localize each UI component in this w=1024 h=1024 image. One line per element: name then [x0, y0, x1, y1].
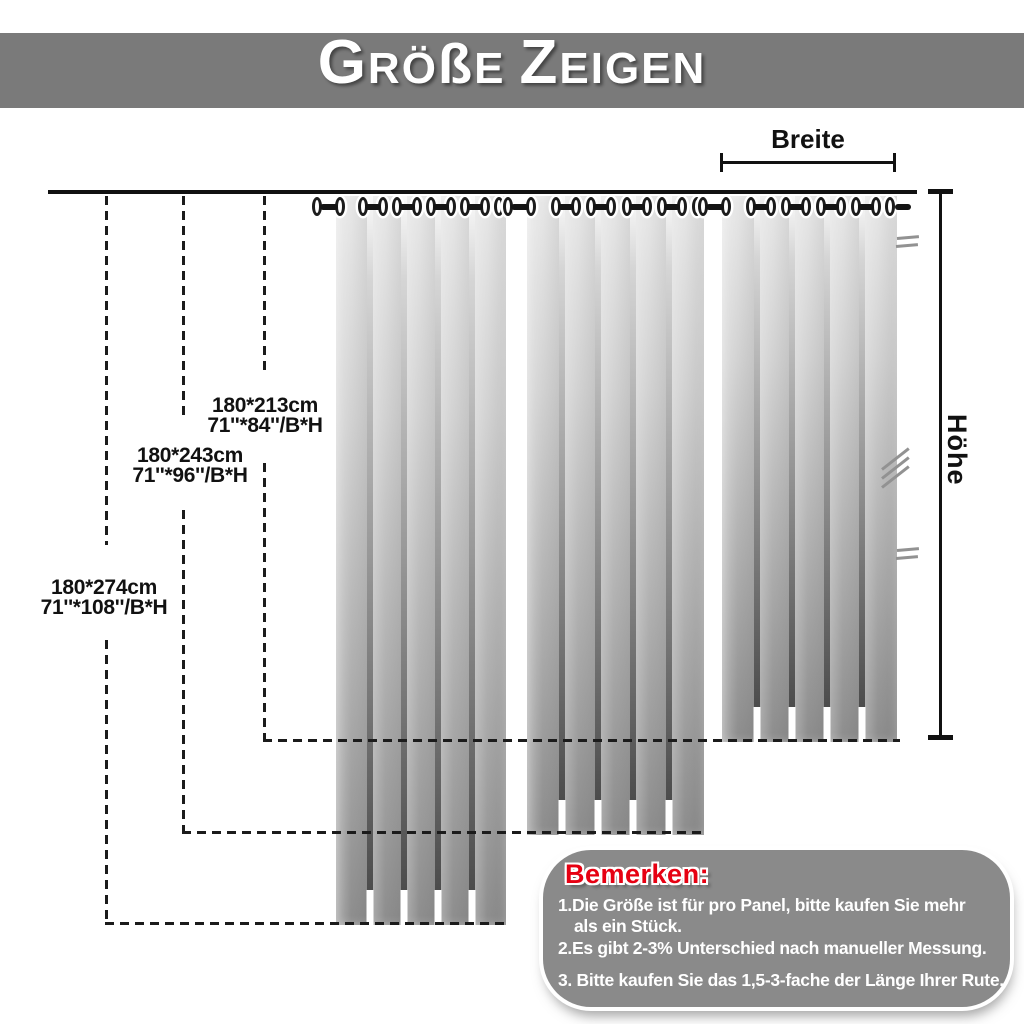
grommet-pair — [622, 197, 652, 219]
grommet-pair — [460, 197, 490, 219]
hem-slit — [789, 707, 796, 742]
size-label-213: 180*213cm 71''*84''/B*H — [196, 396, 334, 436]
grommet-pair — [426, 197, 456, 219]
hem-slit — [401, 890, 408, 925]
hem-slit — [630, 800, 637, 835]
fold-section — [827, 196, 862, 742]
guide-line-vertical-274 — [105, 196, 108, 545]
size-cm: 180*243cm — [121, 446, 259, 466]
size-label-274: 180*274cm 71''*108''/B*H — [31, 578, 177, 618]
size-inches: 71''*84''/B*H — [196, 416, 334, 436]
fold-mark — [896, 555, 918, 560]
guide-line-vertical-213 — [263, 196, 266, 372]
grommet-row — [527, 197, 704, 219]
fold-stripe — [367, 196, 373, 890]
rod-segment — [593, 204, 609, 210]
hem-slit — [859, 707, 866, 742]
rod-segment — [433, 204, 449, 210]
fold-mark — [897, 235, 919, 240]
rod-segment — [467, 204, 483, 210]
guide-line-bottom-274 — [105, 922, 505, 925]
guide-line-vertical-243 — [182, 196, 185, 420]
rod-segment — [753, 204, 769, 210]
grommet-pair — [551, 197, 581, 219]
fold-mark — [896, 243, 918, 248]
fold-stripe — [666, 196, 672, 800]
rod-segment — [664, 204, 680, 210]
guide-line-bottom-213 — [263, 739, 900, 742]
fold-section — [472, 196, 506, 925]
height-measure-cap-top — [928, 189, 953, 194]
curtain-panel-274cm — [336, 196, 506, 925]
notes-box: Bemerken: 1.Die Größe ist für pro Panel,… — [543, 850, 1010, 1007]
curtain-rod — [48, 190, 917, 194]
note-1: 1.Die Größe ist für pro Panel, bitte kau… — [558, 895, 965, 916]
hem-slit — [435, 890, 442, 925]
fold-stripe — [559, 196, 565, 800]
size-label-243: 180*243cm 71''*96''/B*H — [121, 446, 259, 486]
fold-stripe — [789, 196, 795, 707]
fold-stripe — [595, 196, 601, 800]
fold-stripe — [824, 196, 830, 707]
fold-stripe — [435, 196, 441, 890]
rod-segment — [788, 204, 804, 210]
hem-slit — [754, 707, 761, 742]
grommet-pair — [816, 197, 846, 219]
grommet-pair — [392, 197, 422, 219]
fold-stripe — [630, 196, 636, 800]
guide-line-vertical-243 — [182, 510, 185, 833]
rod-segment — [629, 204, 645, 210]
header-banner: GRÖßEZEIGEN — [0, 33, 1024, 108]
rod-segment — [895, 204, 911, 210]
fold-stripe — [754, 196, 760, 707]
size-inches: 71''*96''/B*H — [121, 466, 259, 486]
size-cm: 180*213cm — [196, 396, 334, 416]
fold-section — [792, 196, 827, 742]
width-label: Breite — [721, 124, 895, 155]
grommet-pair — [851, 197, 881, 219]
grommet-pair — [746, 197, 776, 219]
grommet-pair — [358, 197, 388, 219]
notes-title: Bemerken: — [565, 859, 709, 890]
grommet-row — [336, 197, 506, 219]
note-2: 2.Es gibt 2-3% Unterschied nach manuelle… — [558, 938, 986, 959]
fold-section — [438, 196, 472, 925]
rod-segment — [511, 204, 529, 210]
note-1-continued: als ein Stück. — [574, 916, 682, 937]
height-measure-cap-bottom — [928, 735, 953, 740]
hem-slit — [665, 800, 672, 835]
hem-slit — [594, 800, 601, 835]
guide-line-vertical-274 — [105, 640, 108, 925]
grommet-pair — [781, 197, 811, 219]
width-measure-tick-left — [720, 153, 723, 172]
rod-segment — [399, 204, 415, 210]
curtain-size-diagram: GRÖßEZEIGEN Breite Höhe 180*213cm 71''*8… — [0, 0, 1024, 1024]
guide-line-vertical-213 — [263, 463, 266, 742]
size-cm: 180*274cm — [31, 578, 177, 598]
fold-stripe — [859, 196, 865, 707]
fold-stripe — [401, 196, 407, 890]
fold-section — [722, 196, 757, 742]
hem-slit — [559, 800, 566, 835]
rod-segment — [365, 204, 381, 210]
height-label: Höhe — [941, 414, 972, 486]
fold-section — [757, 196, 792, 742]
fold-section — [336, 196, 370, 925]
page-title: GRÖßEZEIGEN — [318, 25, 707, 116]
guide-line-bottom-243 — [182, 831, 704, 834]
hem-slit — [824, 707, 831, 742]
rod-segment — [858, 204, 874, 210]
rod-segment — [706, 204, 724, 210]
curtain-panel-213cm — [722, 196, 897, 742]
grommet-ring — [885, 197, 895, 216]
fold-stripe — [469, 196, 475, 890]
rod-segment — [320, 204, 338, 210]
hem-slit — [367, 890, 374, 925]
size-inches: 71''*108''/B*H — [31, 598, 177, 618]
grommet-row — [722, 197, 897, 219]
note-3: 3. Bitte kaufen Sie das 1,5-3-fache der … — [558, 970, 1004, 991]
fold-section — [370, 196, 404, 925]
grommet-pair — [657, 197, 687, 219]
grommet-pair — [586, 197, 616, 219]
fold-mark — [897, 547, 919, 552]
rod-segment — [558, 204, 574, 210]
fold-section — [404, 196, 438, 925]
rod-segment — [823, 204, 839, 210]
width-measure-line — [721, 161, 895, 164]
width-measure-tick-right — [893, 153, 896, 172]
hem-slit — [469, 890, 476, 925]
